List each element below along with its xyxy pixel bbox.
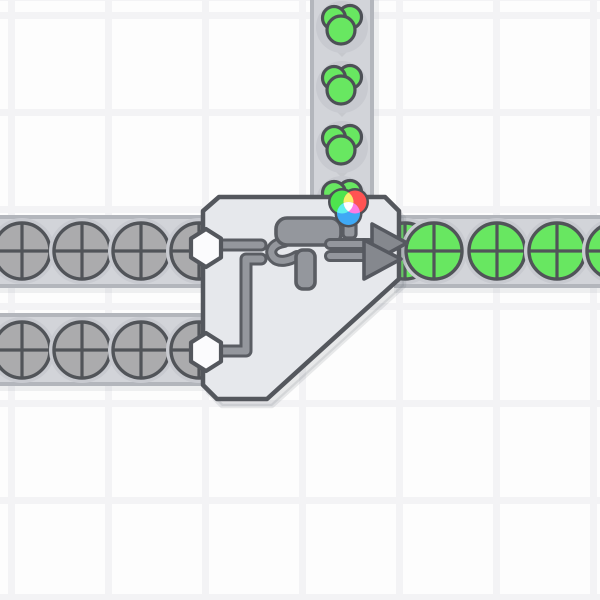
paint-drop bbox=[327, 76, 355, 104]
shape-circle-item bbox=[108, 218, 174, 284]
belt-edge bbox=[0, 313, 206, 317]
shape-circle-item bbox=[49, 218, 115, 284]
belt-edge bbox=[0, 382, 206, 386]
belt-shadow bbox=[0, 288, 206, 293]
input-connector-hexagon bbox=[191, 229, 221, 267]
paint-blob-item bbox=[316, 121, 368, 173]
paint-blob-item bbox=[316, 1, 368, 53]
belt-edge bbox=[0, 284, 206, 288]
belt-shadow bbox=[394, 288, 600, 293]
belt-edge bbox=[310, 0, 314, 202]
belt-edge bbox=[0, 215, 206, 219]
shape-circle-item bbox=[464, 218, 530, 284]
roller-handle bbox=[296, 250, 315, 289]
belt-shadow bbox=[374, 0, 379, 202]
belt-edge bbox=[370, 0, 374, 202]
belt-edge bbox=[394, 284, 600, 288]
painter-building[interactable] bbox=[191, 197, 407, 406]
paint-drop bbox=[327, 16, 355, 44]
paint-blob-item bbox=[316, 61, 368, 113]
game-viewport[interactable] bbox=[0, 0, 600, 600]
input-connector-hexagon bbox=[191, 333, 221, 371]
factory-scene bbox=[0, 0, 600, 600]
shape-circle-item bbox=[524, 218, 590, 284]
shape-circle-item bbox=[108, 317, 174, 383]
shape-circle-item bbox=[49, 317, 115, 383]
belt-shadow bbox=[0, 386, 206, 391]
shape-circle-item bbox=[401, 218, 467, 284]
paint-drop bbox=[327, 136, 355, 164]
